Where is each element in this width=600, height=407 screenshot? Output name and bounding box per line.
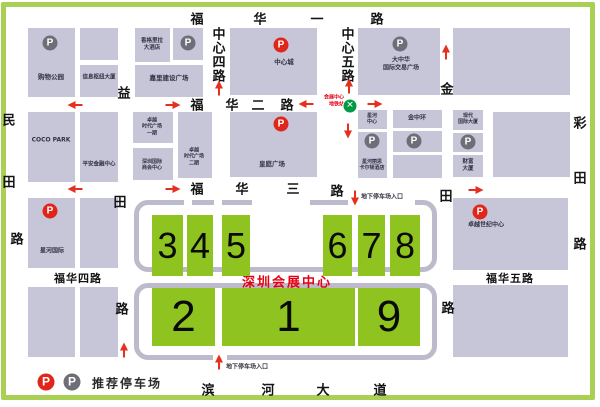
- building-label: 香格里拉 大酒店: [141, 38, 163, 52]
- street-label: 路: [441, 298, 454, 317]
- street-label: 福华四路: [54, 270, 102, 286]
- arrow-head: [299, 100, 307, 108]
- street-label: 路: [280, 95, 293, 114]
- street-label: 福: [190, 179, 203, 198]
- building-label: COCO PARK: [32, 136, 71, 144]
- parking-entrance-label: 地下停车场入口: [361, 192, 403, 201]
- hall-3: 3: [152, 215, 183, 276]
- arrow-tail: [445, 52, 447, 60]
- street-label: 福: [190, 95, 203, 114]
- building-label: 中心城: [274, 58, 294, 66]
- street-label: 彩: [573, 113, 586, 132]
- arrow-head: [120, 343, 128, 351]
- direction-arrow-down: [344, 124, 352, 139]
- direction-arrow-left: [299, 100, 314, 108]
- gray-parking-icon: P: [43, 36, 58, 51]
- arrow-head: [68, 185, 76, 193]
- arrow-head: [375, 100, 383, 108]
- arrow-head: [68, 101, 76, 109]
- red-parking-icon: P: [274, 117, 289, 132]
- gray-parking-icon: P: [181, 36, 196, 51]
- direction-arrow-right: [166, 101, 181, 109]
- arrow-head: [215, 355, 223, 363]
- hall-8: 8: [390, 215, 420, 276]
- street-label: 一: [310, 9, 323, 28]
- building-label: 星河丽思 卡尔顿酒店: [359, 159, 384, 172]
- arrow-tail: [75, 188, 83, 190]
- hall-5: 5: [222, 215, 250, 276]
- arrow-head: [173, 185, 181, 193]
- arrow-head: [351, 198, 359, 206]
- street-label: 益: [117, 83, 130, 102]
- street-label: 道: [373, 380, 386, 399]
- street-label: 福: [190, 9, 203, 28]
- building-label: 卓越 时代广场 一期: [142, 118, 162, 137]
- building-label: 星河国际: [40, 247, 64, 255]
- direction-arrow-up: [345, 79, 353, 94]
- street-label: 田: [113, 192, 126, 211]
- hall-2: 2: [152, 288, 215, 346]
- street-label: 路: [330, 181, 343, 200]
- direction-arrow-down: [351, 191, 359, 206]
- street-label: 华: [235, 179, 248, 198]
- building-label: 嘉里建设广场: [150, 74, 189, 82]
- arrow-tail: [75, 104, 83, 106]
- building-label: 现代 国际大厦: [458, 113, 478, 126]
- arrow-head: [442, 45, 450, 53]
- hall-1: 1: [222, 288, 355, 346]
- street-label: 金: [440, 79, 453, 98]
- arrow-tail: [348, 86, 350, 94]
- direction-arrow-left: [68, 101, 83, 109]
- direction-arrow-up: [215, 355, 223, 370]
- red-parking-icon: P: [274, 38, 289, 53]
- gray-parking-icon: P: [365, 134, 380, 149]
- direction-arrow-left: [68, 185, 83, 193]
- building-label: 星河 中心: [367, 113, 377, 126]
- gray-parking-icon: P: [461, 135, 476, 150]
- street-label: 河: [261, 380, 274, 399]
- direction-arrow-up: [120, 343, 128, 358]
- building-label: 卓越世纪中心: [468, 221, 504, 229]
- building-label: 大中华 国际交易广场: [383, 57, 419, 72]
- street-label: 华: [225, 95, 238, 114]
- arrow-tail: [218, 362, 220, 370]
- direction-arrow-right: [368, 100, 383, 108]
- arrow-head: [173, 101, 181, 109]
- building-label: 深圳国际 商会中心: [142, 159, 162, 172]
- hall-9: 9: [358, 288, 420, 346]
- parking-entrance-label: 地下停车场入口: [226, 362, 268, 371]
- street-label: 田: [439, 186, 452, 205]
- building-label: 卓越 时代广场 二期: [184, 148, 204, 167]
- gray-parking-icon: P: [407, 134, 422, 149]
- gray-parking-icon: P: [393, 37, 408, 52]
- arrow-head: [345, 79, 353, 87]
- building-label: 平安金融中心: [82, 162, 115, 169]
- shenzhen-convention-center-map: 深圳会展中心 会展中心 地铁站 ✕ P P 推荐停车场 P购物公园信息枢纽大厦香…: [0, 0, 600, 407]
- street-label: 二: [251, 95, 264, 114]
- street-label: 大: [316, 380, 329, 399]
- street-label: 三: [286, 179, 299, 198]
- arrow-tail: [218, 88, 220, 96]
- direction-arrow-right: [166, 185, 181, 193]
- direction-arrow-up: [215, 81, 223, 96]
- arrow-tail: [123, 350, 125, 358]
- hall-7: 7: [358, 215, 385, 276]
- arrow-head: [215, 81, 223, 89]
- direction-arrow-right: [469, 186, 484, 194]
- street-label: 路: [115, 299, 128, 318]
- hall-4: 4: [187, 215, 213, 276]
- street-label: 福华五路: [486, 270, 534, 286]
- hall-6: 6: [323, 215, 352, 276]
- arrow-tail: [306, 103, 314, 105]
- red-parking-icon: P: [43, 204, 58, 219]
- street-label: 路: [10, 229, 23, 248]
- building-label: 金中环: [408, 114, 426, 122]
- building-label: 财富 大厦: [462, 159, 473, 173]
- building-label: 购物公园: [38, 73, 64, 81]
- direction-arrow-up: [442, 45, 450, 60]
- street-label: 民: [2, 110, 15, 129]
- arrow-head: [476, 186, 484, 194]
- street-label: 田: [573, 168, 586, 187]
- building-label: 信息枢纽大厦: [82, 75, 115, 82]
- street-label: 田: [2, 172, 15, 191]
- street-label: 路: [370, 9, 383, 28]
- street-label: 路: [573, 234, 586, 253]
- street-label: 滨: [201, 380, 214, 399]
- red-parking-icon: P: [473, 205, 488, 220]
- arrow-head: [344, 131, 352, 139]
- street-label: 华: [253, 9, 266, 28]
- building-label: 皇庭广场: [259, 160, 285, 168]
